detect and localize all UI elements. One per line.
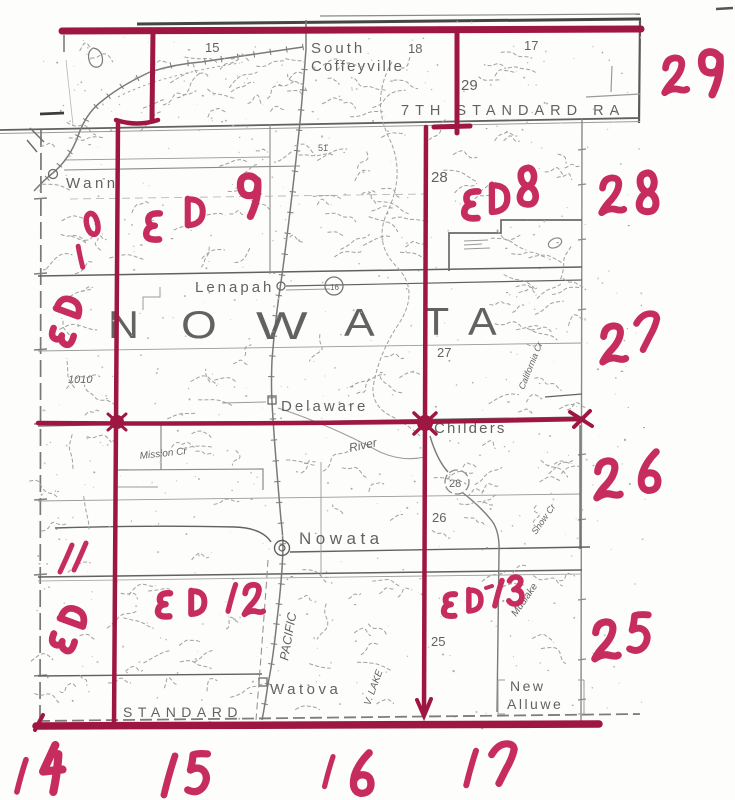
svg-text:18: 18 — [408, 41, 422, 56]
svg-text:25: 25 — [431, 634, 445, 649]
svg-text:16: 16 — [330, 283, 339, 292]
svg-text:W: W — [256, 304, 308, 348]
svg-text:New: New — [510, 678, 546, 694]
svg-text:South: South — [311, 40, 365, 57]
svg-text:28: 28 — [449, 478, 461, 490]
svg-text:Alluwe: Alluwe — [507, 696, 563, 712]
svg-text:26: 26 — [432, 510, 446, 525]
svg-text:A: A — [468, 300, 497, 344]
svg-text:Watova: Watova — [270, 681, 341, 698]
svg-text:Wann: Wann — [66, 175, 119, 192]
svg-text:28: 28 — [431, 169, 448, 186]
svg-text:17: 17 — [524, 38, 538, 53]
svg-text:Nowata: Nowata — [299, 529, 384, 548]
svg-text:Lenapah: Lenapah — [195, 279, 274, 296]
svg-text:27: 27 — [437, 345, 451, 360]
svg-text:15: 15 — [205, 40, 219, 55]
svg-text:STANDARD: STANDARD — [123, 704, 243, 720]
svg-text:N: N — [108, 303, 139, 347]
svg-text:Delaware: Delaware — [281, 398, 368, 415]
svg-text:7TH STANDARD RA: 7TH STANDARD RA — [401, 103, 625, 119]
svg-text:1010: 1010 — [68, 374, 93, 386]
svg-text:O: O — [181, 303, 217, 347]
svg-text:A: A — [344, 301, 375, 345]
svg-text:Coffeyville: Coffeyville — [311, 58, 404, 75]
